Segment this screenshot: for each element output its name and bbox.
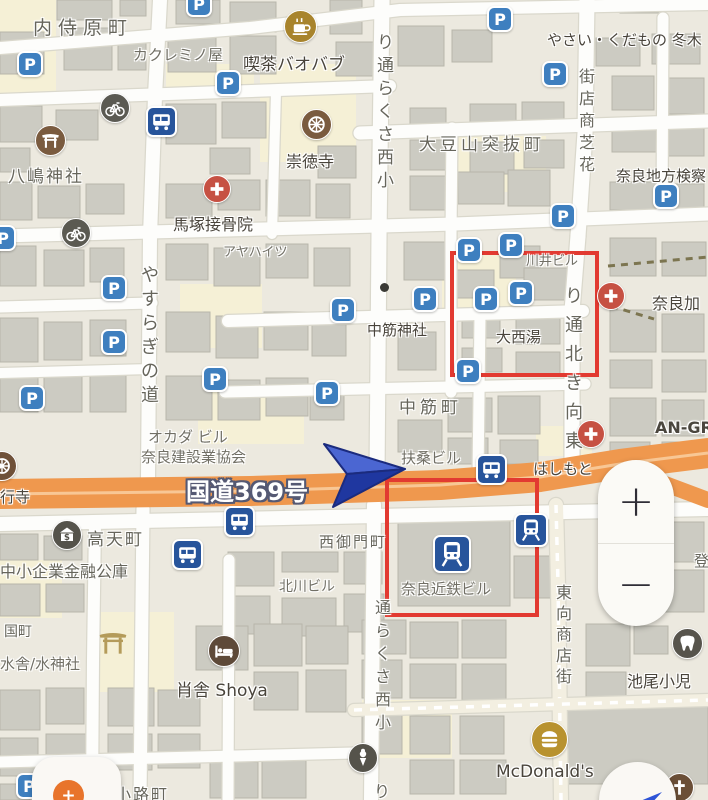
map-label: 八嶋神社: [8, 162, 84, 187]
report-button[interactable]: +: [32, 757, 121, 800]
street-name-vertical: 通らくさ西小: [372, 596, 394, 734]
train-station-icon[interactable]: [514, 513, 548, 547]
shrine-gate-glyph: [94, 624, 132, 662]
building: [634, 626, 668, 654]
road: [0, 369, 152, 373]
building: [0, 182, 32, 220]
map-label: 登: [694, 550, 708, 571]
parking-icon[interactable]: P: [412, 286, 438, 312]
building: [462, 620, 506, 658]
building: [0, 690, 40, 730]
compass-arrow-icon: [599, 762, 676, 800]
building: [498, 396, 540, 434]
zoom-out-button[interactable]: −: [598, 543, 674, 627]
building: [612, 76, 654, 110]
parking-icon[interactable]: P: [550, 203, 576, 229]
building: [410, 760, 454, 794]
parking-icon[interactable]: P: [330, 297, 356, 323]
building: [222, 102, 266, 138]
parking-letter: P: [26, 389, 38, 408]
bicycle-parking-icon[interactable]: [100, 93, 130, 123]
map-label: 池尾小児: [627, 668, 691, 692]
building: [508, 170, 550, 206]
temple-icon[interactable]: [301, 109, 332, 140]
parking-icon[interactable]: P: [202, 366, 228, 392]
map-viewport[interactable]: PPPPPPPPPPPPPPPPPPPPP$ 内侍原町カクレミノ屋喫茶バオバブや…: [0, 0, 708, 800]
parking-icon[interactable]: P: [215, 70, 241, 96]
parking-letter: P: [321, 384, 333, 403]
building: [166, 312, 210, 352]
train-station-icon[interactable]: [433, 535, 471, 573]
parking-letter: P: [193, 0, 205, 14]
parking-letter: P: [557, 207, 569, 226]
building: [44, 376, 82, 412]
parking-icon[interactable]: P: [508, 280, 534, 306]
parking-letter: P: [462, 362, 474, 381]
map-label: 中筋町: [399, 393, 462, 418]
map-label: 小路町: [115, 781, 169, 800]
hospital-cross-icon[interactable]: [597, 282, 625, 310]
cafe-icon[interactable]: [284, 10, 317, 43]
map-label: 高天町: [87, 525, 144, 550]
parking-letter: P: [337, 301, 349, 320]
building: [282, 552, 338, 572]
hospital-cross-icon[interactable]: [203, 175, 231, 203]
map-label: 大豆山突抜町: [419, 130, 545, 155]
map-label: 内侍原町: [33, 13, 133, 40]
map-label: 行寺: [0, 486, 30, 507]
building: [662, 314, 704, 352]
building: [586, 624, 630, 666]
building: [210, 148, 250, 174]
svg-text:$: $: [64, 533, 70, 543]
parking-letter: P: [108, 333, 120, 352]
parking-icon[interactable]: P: [456, 237, 482, 263]
parking-letter: P: [660, 187, 672, 206]
mcdonalds-icon[interactable]: [531, 721, 568, 758]
building: [610, 182, 656, 210]
map-label: McDonald's: [496, 762, 594, 782]
dentist-icon[interactable]: [672, 628, 703, 659]
building: [462, 664, 506, 700]
map-label: 中小企業金融公庫: [0, 558, 128, 582]
street-name-vertical: り: [371, 781, 393, 800]
building: [410, 716, 450, 754]
bus-stop-icon[interactable]: [172, 539, 203, 570]
map-label: アヤハイツ: [223, 241, 287, 260]
map-label: 馬塚接骨院: [173, 211, 253, 235]
map-label: 崇徳寺: [286, 148, 334, 172]
street-name-vertical: 東向商店街: [553, 582, 575, 687]
compass-button[interactable]: [599, 762, 676, 800]
parking-icon[interactable]: P: [455, 358, 481, 384]
building: [458, 172, 504, 204]
building: [44, 250, 84, 286]
map-label: 肖舎 Shoya: [176, 676, 268, 701]
building: [662, 360, 706, 392]
zoom-in-button[interactable]: +: [598, 460, 674, 543]
building: [0, 584, 40, 616]
map-label: 大西湯: [496, 326, 541, 347]
building: [262, 760, 306, 798]
bus-stop-icon[interactable]: [146, 106, 177, 137]
building: [46, 688, 84, 724]
building: [514, 556, 554, 598]
building: [610, 238, 656, 276]
map-label: 川井ビル: [526, 250, 578, 269]
map-label: 北川ビル: [279, 576, 335, 596]
map-label: 奈良建設業協会: [141, 446, 246, 467]
parking-icon[interactable]: P: [473, 286, 499, 312]
road-dot: [380, 283, 389, 292]
building: [404, 242, 450, 280]
map-label: 奈良近鉄ビル: [401, 578, 491, 599]
road: [272, 92, 276, 234]
parking-letter: P: [515, 284, 527, 303]
parking-icon[interactable]: P: [19, 385, 45, 411]
parking-letter: P: [209, 370, 221, 389]
plus-circle-icon: +: [53, 780, 84, 800]
shrine-torii-icon[interactable]: [35, 125, 66, 156]
parking-icon[interactable]: P: [186, 0, 212, 17]
parking-letter: P: [480, 290, 492, 309]
map-label: やさい・くだもの 冬木: [547, 29, 702, 50]
map-label: 喫茶バオバブ: [243, 50, 345, 75]
building: [452, 30, 492, 62]
parking-icon[interactable]: P: [101, 329, 127, 355]
parking-letter: P: [24, 55, 36, 74]
building: [306, 670, 346, 712]
parking-icon[interactable]: P: [498, 232, 524, 258]
building: [398, 26, 444, 66]
snack-shop-icon[interactable]: [348, 743, 378, 773]
zoom-control: + −: [598, 460, 674, 626]
hotel-icon[interactable]: [208, 635, 240, 667]
parking-letter: P: [463, 241, 475, 260]
building: [90, 374, 126, 412]
bank-icon[interactable]: $: [52, 520, 82, 550]
parking-letter: P: [0, 229, 9, 248]
building: [44, 322, 82, 360]
building: [610, 398, 656, 436]
road: [478, 315, 480, 477]
parking-letter: P: [222, 74, 234, 93]
navigation-cursor-icon: [316, 436, 412, 516]
building: [610, 360, 652, 388]
parking-icon[interactable]: P: [487, 6, 513, 32]
building: [0, 246, 36, 286]
parking-icon[interactable]: P: [542, 61, 568, 87]
building: [38, 186, 80, 218]
map-label: 中筋神社: [367, 319, 427, 340]
map-label: 国町: [4, 621, 32, 641]
parking-letter: P: [419, 290, 431, 309]
building: [516, 352, 560, 376]
building: [254, 624, 302, 666]
parking-icon[interactable]: P: [17, 51, 43, 77]
building: [46, 584, 84, 612]
building: [314, 248, 350, 286]
street-name-vertical: 街店商芝花: [576, 66, 598, 176]
parking-icon[interactable]: P: [314, 380, 340, 406]
building: [0, 318, 38, 362]
bicycle-parking-icon[interactable]: [61, 218, 91, 248]
road: [0, 303, 152, 307]
map-label: カクレミノ屋: [133, 44, 223, 65]
parking-letter: P: [494, 10, 506, 29]
map-label: 西御門町: [319, 531, 387, 552]
parking-letter: P: [549, 65, 561, 84]
building: [86, 184, 124, 214]
map-label: 水舎/水神社: [0, 653, 80, 674]
parking-icon[interactable]: P: [0, 225, 16, 251]
map-label: オカダ ビル: [148, 426, 228, 447]
hospital-cross-icon[interactable]: [577, 420, 605, 448]
map-label: 奈良加: [652, 290, 700, 314]
parking-letter: P: [505, 236, 517, 255]
map-label: はしもと: [533, 458, 593, 479]
building: [306, 626, 348, 664]
building: [316, 184, 350, 218]
building: [460, 716, 504, 754]
building: [0, 534, 38, 560]
street-name-vertical: やすらぎの道: [138, 264, 162, 408]
building: [166, 244, 208, 280]
street-name-vertical: り通らくさ西小: [374, 32, 397, 193]
parking-letter: P: [108, 279, 120, 298]
bus-stop-icon[interactable]: [224, 506, 255, 537]
map-label: 国道369号: [186, 472, 308, 507]
building: [410, 664, 456, 698]
bus-stop-icon[interactable]: [476, 454, 507, 485]
map-label: AN-GR: [655, 418, 708, 437]
parking-icon[interactable]: P: [653, 183, 679, 209]
building: [410, 622, 458, 658]
parking-icon[interactable]: P: [101, 275, 127, 301]
